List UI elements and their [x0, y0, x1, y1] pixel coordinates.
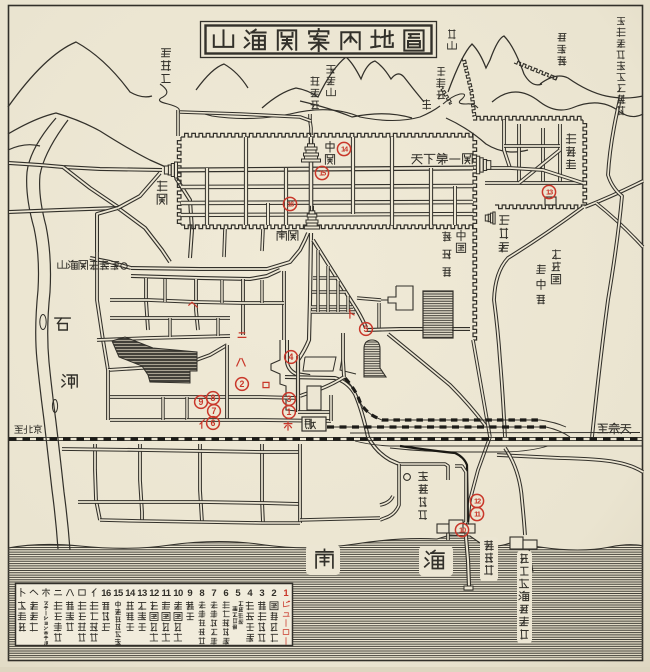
svg-text:3: 3 [287, 394, 292, 404]
svg-text:8: 8 [211, 393, 216, 403]
svg-text:7: 7 [212, 406, 217, 416]
svg-text:16: 16 [101, 588, 111, 599]
svg-text:9: 9 [199, 397, 204, 407]
svg-text:6: 6 [223, 588, 228, 599]
svg-text:12: 12 [149, 588, 159, 599]
svg-text:10: 10 [173, 588, 183, 599]
svg-text:2: 2 [271, 588, 276, 599]
svg-text:3: 3 [259, 588, 264, 599]
svg-text:13: 13 [137, 588, 147, 599]
svg-text:4: 4 [289, 352, 294, 362]
svg-text:9: 9 [187, 588, 192, 599]
svg-text:1: 1 [283, 588, 289, 599]
svg-text:15: 15 [113, 588, 124, 599]
svg-text:14: 14 [125, 588, 136, 599]
svg-text:7: 7 [211, 588, 216, 599]
svg-text:5: 5 [364, 324, 369, 334]
svg-text:2: 2 [240, 379, 245, 389]
svg-text:5: 5 [235, 588, 241, 599]
svg-text:13: 13 [546, 188, 553, 197]
svg-text:10: 10 [459, 526, 466, 535]
svg-text:12: 12 [474, 497, 481, 506]
svg-text:11: 11 [161, 588, 171, 599]
svg-text:4: 4 [247, 588, 253, 599]
svg-text:8: 8 [199, 588, 204, 599]
svg-text:6: 6 [211, 418, 216, 428]
svg-text:1: 1 [287, 407, 292, 417]
svg-text:16: 16 [287, 200, 294, 209]
